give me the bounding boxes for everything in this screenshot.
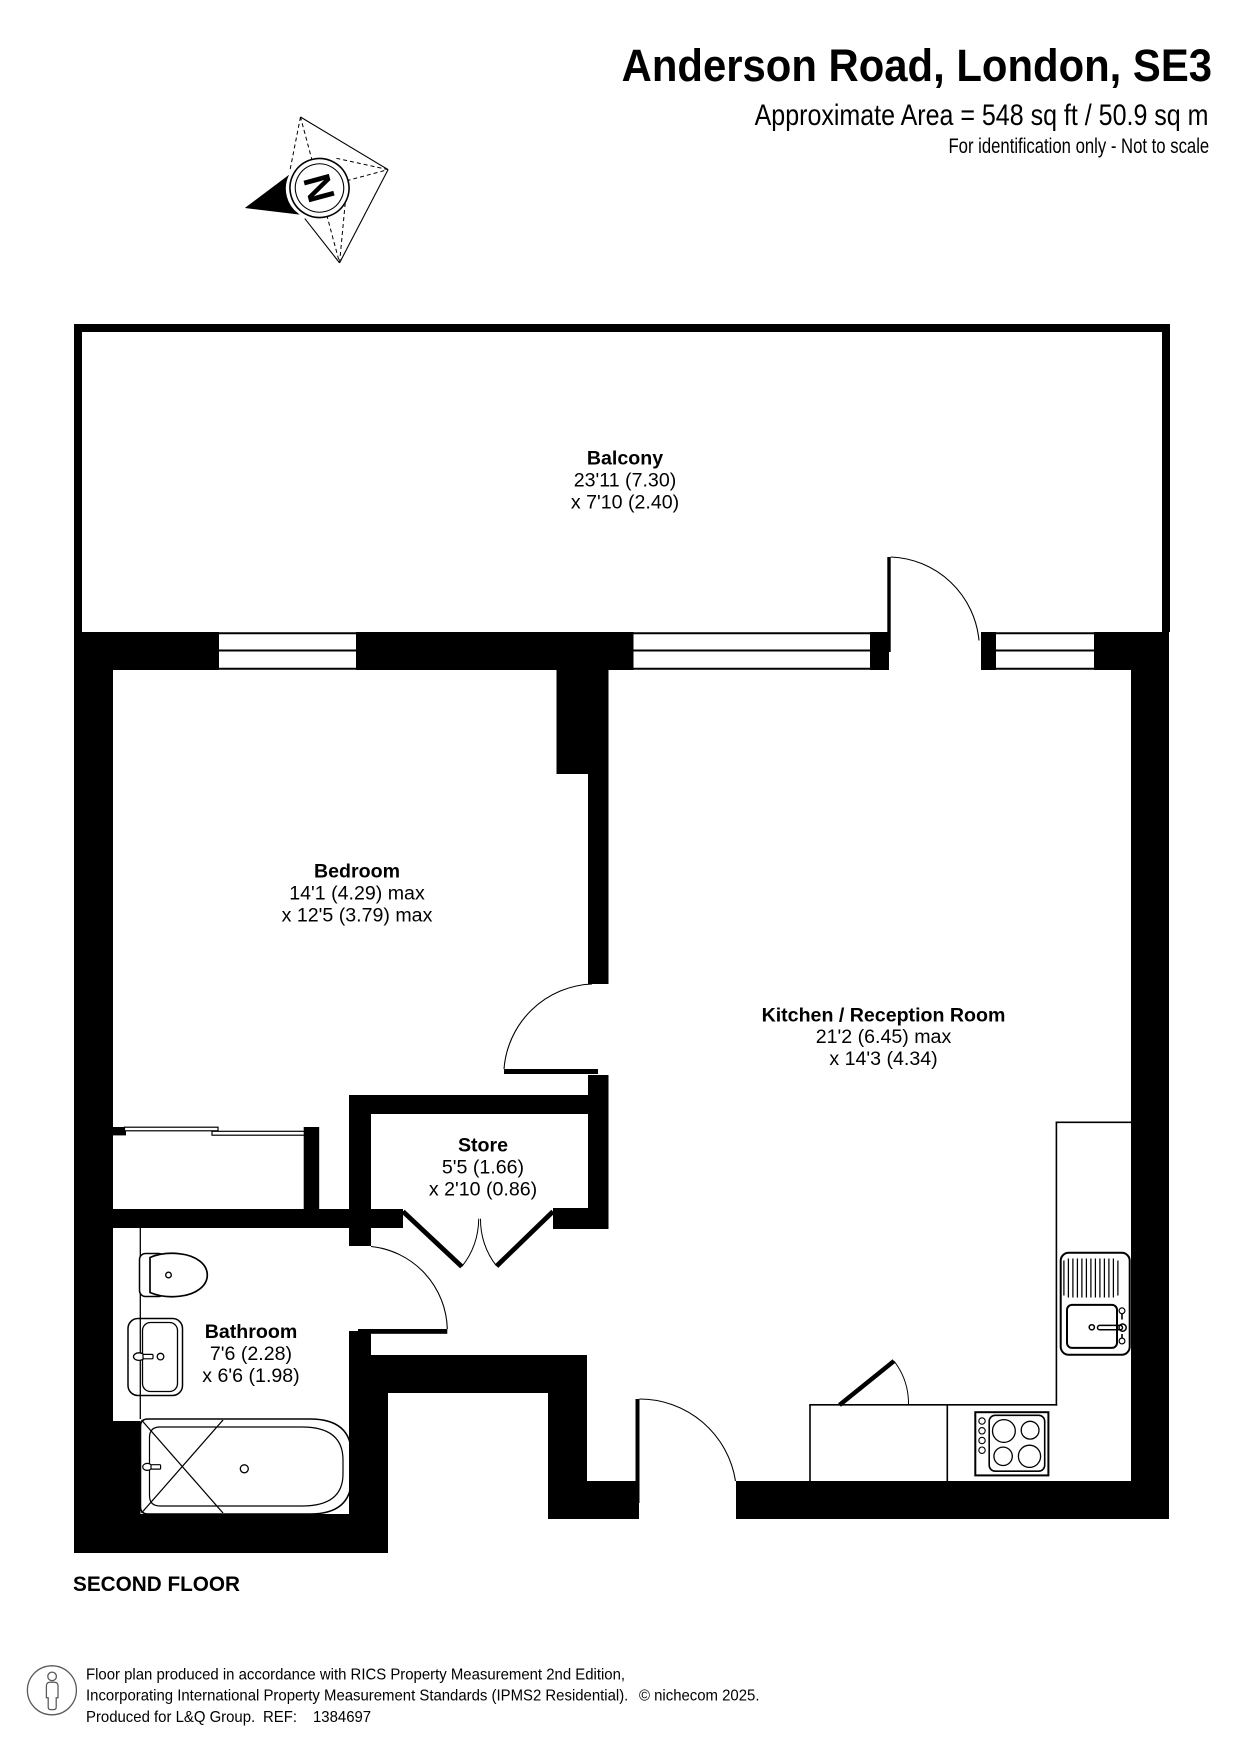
svg-text:Balcony: Balcony: [587, 448, 663, 470]
svg-text:SECOND FLOOR: SECOND FLOOR: [73, 1573, 240, 1596]
svg-text:x 6'6 (1.98): x 6'6 (1.98): [202, 1365, 299, 1387]
svg-text:14'1 (4.29) max: 14'1 (4.29) max: [289, 882, 425, 904]
svg-text:Incorporating International Pr: Incorporating International Property Mea…: [86, 1687, 628, 1704]
svg-text:Bathroom: Bathroom: [205, 1321, 298, 1343]
svg-text:Floor plan produced in accorda: Floor plan produced in accordance with R…: [86, 1666, 625, 1683]
svg-text:x 14'3 (4.34): x 14'3 (4.34): [829, 1048, 937, 1070]
svg-text:5'5 (1.66): 5'5 (1.66): [442, 1156, 524, 1178]
svg-text:© nichecom 2025.: © nichecom 2025.: [639, 1687, 759, 1704]
svg-text:For identification only - Not: For identification only - Not to scale: [948, 135, 1209, 158]
svg-text:21'2 (6.45) max: 21'2 (6.45) max: [816, 1026, 952, 1048]
svg-text:Approximate Area = 548 sq ft /: Approximate Area = 548 sq ft / 50.9 sq m: [755, 98, 1209, 132]
svg-text:x 7'10 (2.40): x 7'10 (2.40): [571, 492, 679, 514]
svg-text:REF:: REF:: [263, 1709, 297, 1726]
svg-text:x 2'10 (0.86): x 2'10 (0.86): [429, 1178, 537, 1200]
svg-text:7'6 (2.28): 7'6 (2.28): [210, 1343, 292, 1365]
svg-text:Produced for L&Q Group.: Produced for L&Q Group.: [86, 1709, 255, 1726]
svg-text:Bedroom: Bedroom: [314, 860, 400, 882]
svg-text:1384697: 1384697: [313, 1709, 371, 1726]
svg-text:Anderson Road, London, SE3: Anderson Road, London, SE3: [622, 42, 1212, 92]
svg-text:x 12'5 (3.79) max: x 12'5 (3.79) max: [282, 904, 433, 926]
svg-text:23'11 (7.30): 23'11 (7.30): [574, 470, 677, 492]
svg-text:Kitchen / Reception Room: Kitchen / Reception Room: [762, 1004, 1006, 1026]
svg-text:Store: Store: [458, 1134, 508, 1156]
